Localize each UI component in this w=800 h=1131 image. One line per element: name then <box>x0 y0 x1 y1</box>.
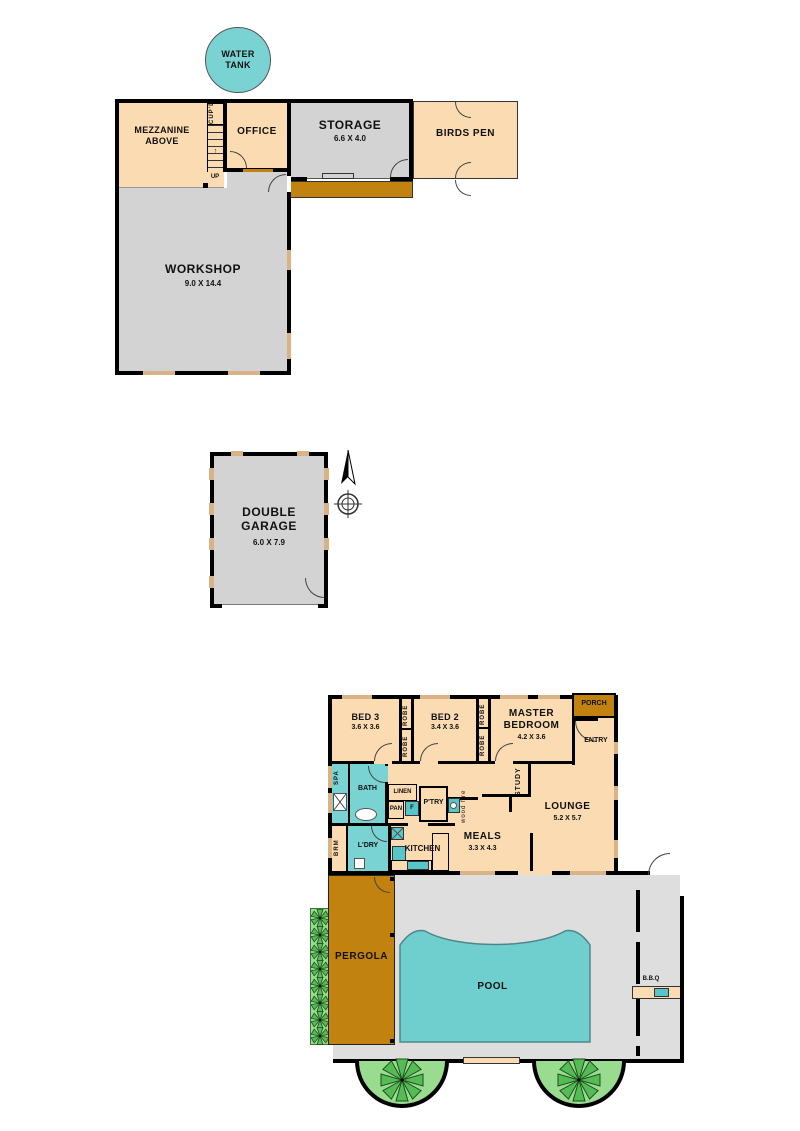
wood-fire-flue <box>450 802 457 809</box>
gate-arc <box>648 853 670 875</box>
door-opening <box>495 761 513 764</box>
pan-label: PAN <box>386 806 406 813</box>
spa-label: SPA <box>334 766 341 790</box>
window <box>287 250 291 270</box>
office-threshold <box>243 169 273 172</box>
dishwasher <box>407 861 429 870</box>
bed3-label: BED 3 <box>332 712 399 723</box>
master-label: MASTER BEDROOM <box>491 708 572 732</box>
storage-dims: 6.6 X 4.0 <box>291 134 409 144</box>
kitchen-sink <box>391 827 404 840</box>
master-dims: 4.2 X 3.6 <box>491 734 572 742</box>
garden-strip-plants <box>310 908 330 1045</box>
stairs-up-label: UP <box>201 174 229 181</box>
bed3-dims: 3.6 X 3.6 <box>332 724 399 732</box>
bbq-plate <box>654 988 669 997</box>
window <box>143 371 175 375</box>
garage-door-opening <box>222 604 318 608</box>
wall <box>482 794 512 797</box>
mezzanine-label: MEZZANINE ABOVE <box>117 125 207 147</box>
step <box>463 1057 520 1064</box>
pergola-label: PERGOLA <box>328 951 395 963</box>
pergola-post <box>390 1039 394 1043</box>
tree-left <box>378 1056 426 1104</box>
window <box>328 766 332 788</box>
window <box>420 695 450 699</box>
kitchen-label: KITCHEN <box>395 844 450 854</box>
window <box>228 371 260 375</box>
pool-label: POOL <box>455 981 530 993</box>
fence-dashed <box>636 890 640 1056</box>
brm-label: BRM <box>334 836 341 860</box>
bath-label: BATH <box>350 785 385 793</box>
window <box>328 838 332 858</box>
robe-label-1: ROBE <box>403 703 410 727</box>
water-tank: WATER TANK <box>205 27 271 93</box>
bed2-label: BED 2 <box>414 712 476 723</box>
study-label: STUDY <box>515 766 523 798</box>
storage-deck <box>290 181 413 198</box>
linen-label: LINEN <box>388 789 417 796</box>
storage-label: STORAGE <box>291 118 409 132</box>
door-opening <box>408 823 428 826</box>
window <box>324 468 329 480</box>
wall <box>528 764 531 797</box>
window <box>614 786 618 800</box>
wall <box>476 727 491 729</box>
wood-fire-label: wood fire <box>461 789 468 823</box>
shower <box>333 793 347 811</box>
tree-right <box>555 1056 603 1104</box>
bed2-dims: 3.4 X 3.6 <box>414 724 476 732</box>
garage-dims: 6.0 X 7.9 <box>210 538 328 548</box>
ptry-label: P'TRY <box>419 799 448 807</box>
meals-dims: 3.3 X 4.3 <box>445 845 520 853</box>
fridge-label: F <box>405 805 419 812</box>
wall <box>390 177 413 181</box>
window <box>342 695 372 699</box>
bathtub-oval <box>355 808 377 821</box>
window <box>614 840 618 858</box>
wall <box>399 728 414 730</box>
wall <box>530 833 533 871</box>
robe-label-4: ROBE <box>480 733 487 757</box>
floor-plan: WATER TANK CUP'D ↑ UP MEZZANINE ABOVE OF… <box>0 0 800 1131</box>
window <box>538 695 560 699</box>
office-label: OFFICE <box>227 126 287 138</box>
window <box>209 468 214 480</box>
workshop-dims: 9.0 X 14.4 <box>119 279 287 289</box>
window <box>328 793 332 813</box>
window <box>297 451 309 456</box>
meals-label: MEALS <box>445 831 520 843</box>
door-opening <box>420 761 438 764</box>
door-opening <box>385 766 388 782</box>
lounge-label: LOUNGE <box>520 801 615 813</box>
wall <box>115 99 413 103</box>
stairs-up-arrow: ↑ <box>209 148 222 156</box>
garage-label: DOUBLE GARAGE <box>210 505 328 534</box>
laundry-trough <box>354 858 365 869</box>
cupboard-label: CUP'D <box>209 104 216 124</box>
workshop-label: WORKSHOP <box>119 262 287 276</box>
storage-step-notch <box>322 173 354 179</box>
wall <box>614 871 650 875</box>
window <box>231 451 243 456</box>
lounge-dims: 5.2 X 5.7 <box>520 815 615 823</box>
robe-label-2: ROBE <box>403 734 410 758</box>
door-opening <box>287 176 291 192</box>
birds-pen-bottom-door-arc-out <box>455 180 471 196</box>
bbq-label: B.B.Q <box>630 976 672 983</box>
window <box>209 576 214 588</box>
north-arrow <box>332 448 364 524</box>
wall <box>115 371 291 375</box>
ldry-label: L'DRY <box>348 842 388 850</box>
entry-label: ENTRY <box>576 737 616 745</box>
robe-label-3: ROBE <box>480 702 487 726</box>
door-opening <box>374 761 392 764</box>
corner-dot <box>203 183 208 188</box>
pergola-post <box>390 933 394 937</box>
window <box>500 695 528 699</box>
wall <box>399 699 402 761</box>
birds-pen-label: BIRDS PEN <box>413 128 518 140</box>
pergola-post <box>390 877 394 881</box>
wall <box>680 896 684 1063</box>
wall <box>332 761 575 764</box>
wall <box>348 764 350 823</box>
water-tank-label: WATER TANK <box>221 49 254 71</box>
wall <box>289 177 307 181</box>
window <box>287 333 291 359</box>
wall <box>409 99 413 181</box>
wall <box>476 699 479 761</box>
porch-label: PORCH <box>572 700 616 708</box>
